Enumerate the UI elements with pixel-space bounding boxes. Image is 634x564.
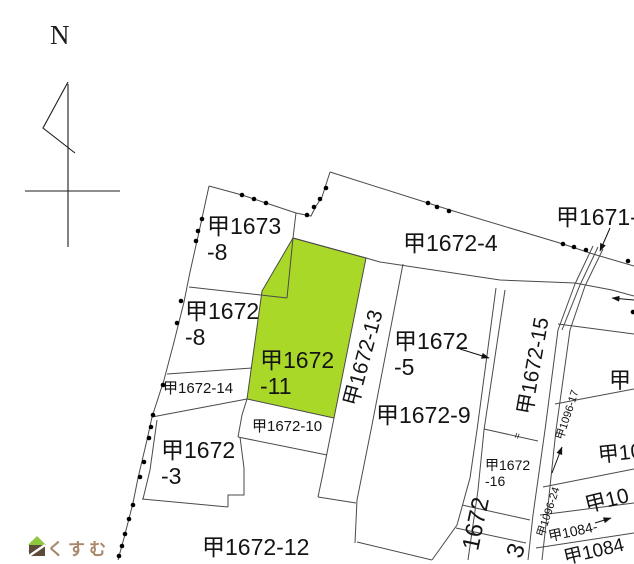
label-parcel-1672-10: 甲1672-10 — [252, 419, 322, 436]
label-parcel-1672-8: 甲1672 -8 — [185, 299, 259, 351]
north-label: N — [50, 20, 70, 51]
north-arrow — [25, 82, 120, 247]
label-parcel-1672-5: 甲1672 -5 — [394, 329, 468, 381]
map-canvas[interactable] — [0, 0, 634, 564]
label-parcel-1672-4: 甲1672-4 — [403, 231, 498, 257]
label-parcel-1672-14: 甲1672-14 — [163, 381, 233, 398]
label-parcel-1672-12: 甲1672-12 — [202, 535, 309, 561]
label-parcel-1671: 甲1671- — [556, 205, 634, 231]
label-parcel-1672-16: 甲1672 -16 — [485, 458, 530, 489]
label-parcel-1672-3: 甲1672 -3 — [161, 438, 235, 490]
rakusumu-logo: らくすむ — [26, 535, 110, 560]
label-parcel-1673-8: 甲1673 -8 — [207, 214, 281, 266]
map-viewport[interactable]: N 甲1673 -8甲1672 -8甲1672 -11甲1672-4甲1671-… — [0, 0, 634, 564]
label-parcel-1672-11: 甲1672 -11 — [260, 348, 334, 400]
rakusumu-logo-icon — [26, 535, 48, 557]
label-fragment-ko10: 甲10 — [597, 440, 634, 468]
label-parcel-1672-9: 甲1672-9 — [376, 403, 471, 429]
label-fragment-ko: 甲 — [609, 369, 631, 394]
